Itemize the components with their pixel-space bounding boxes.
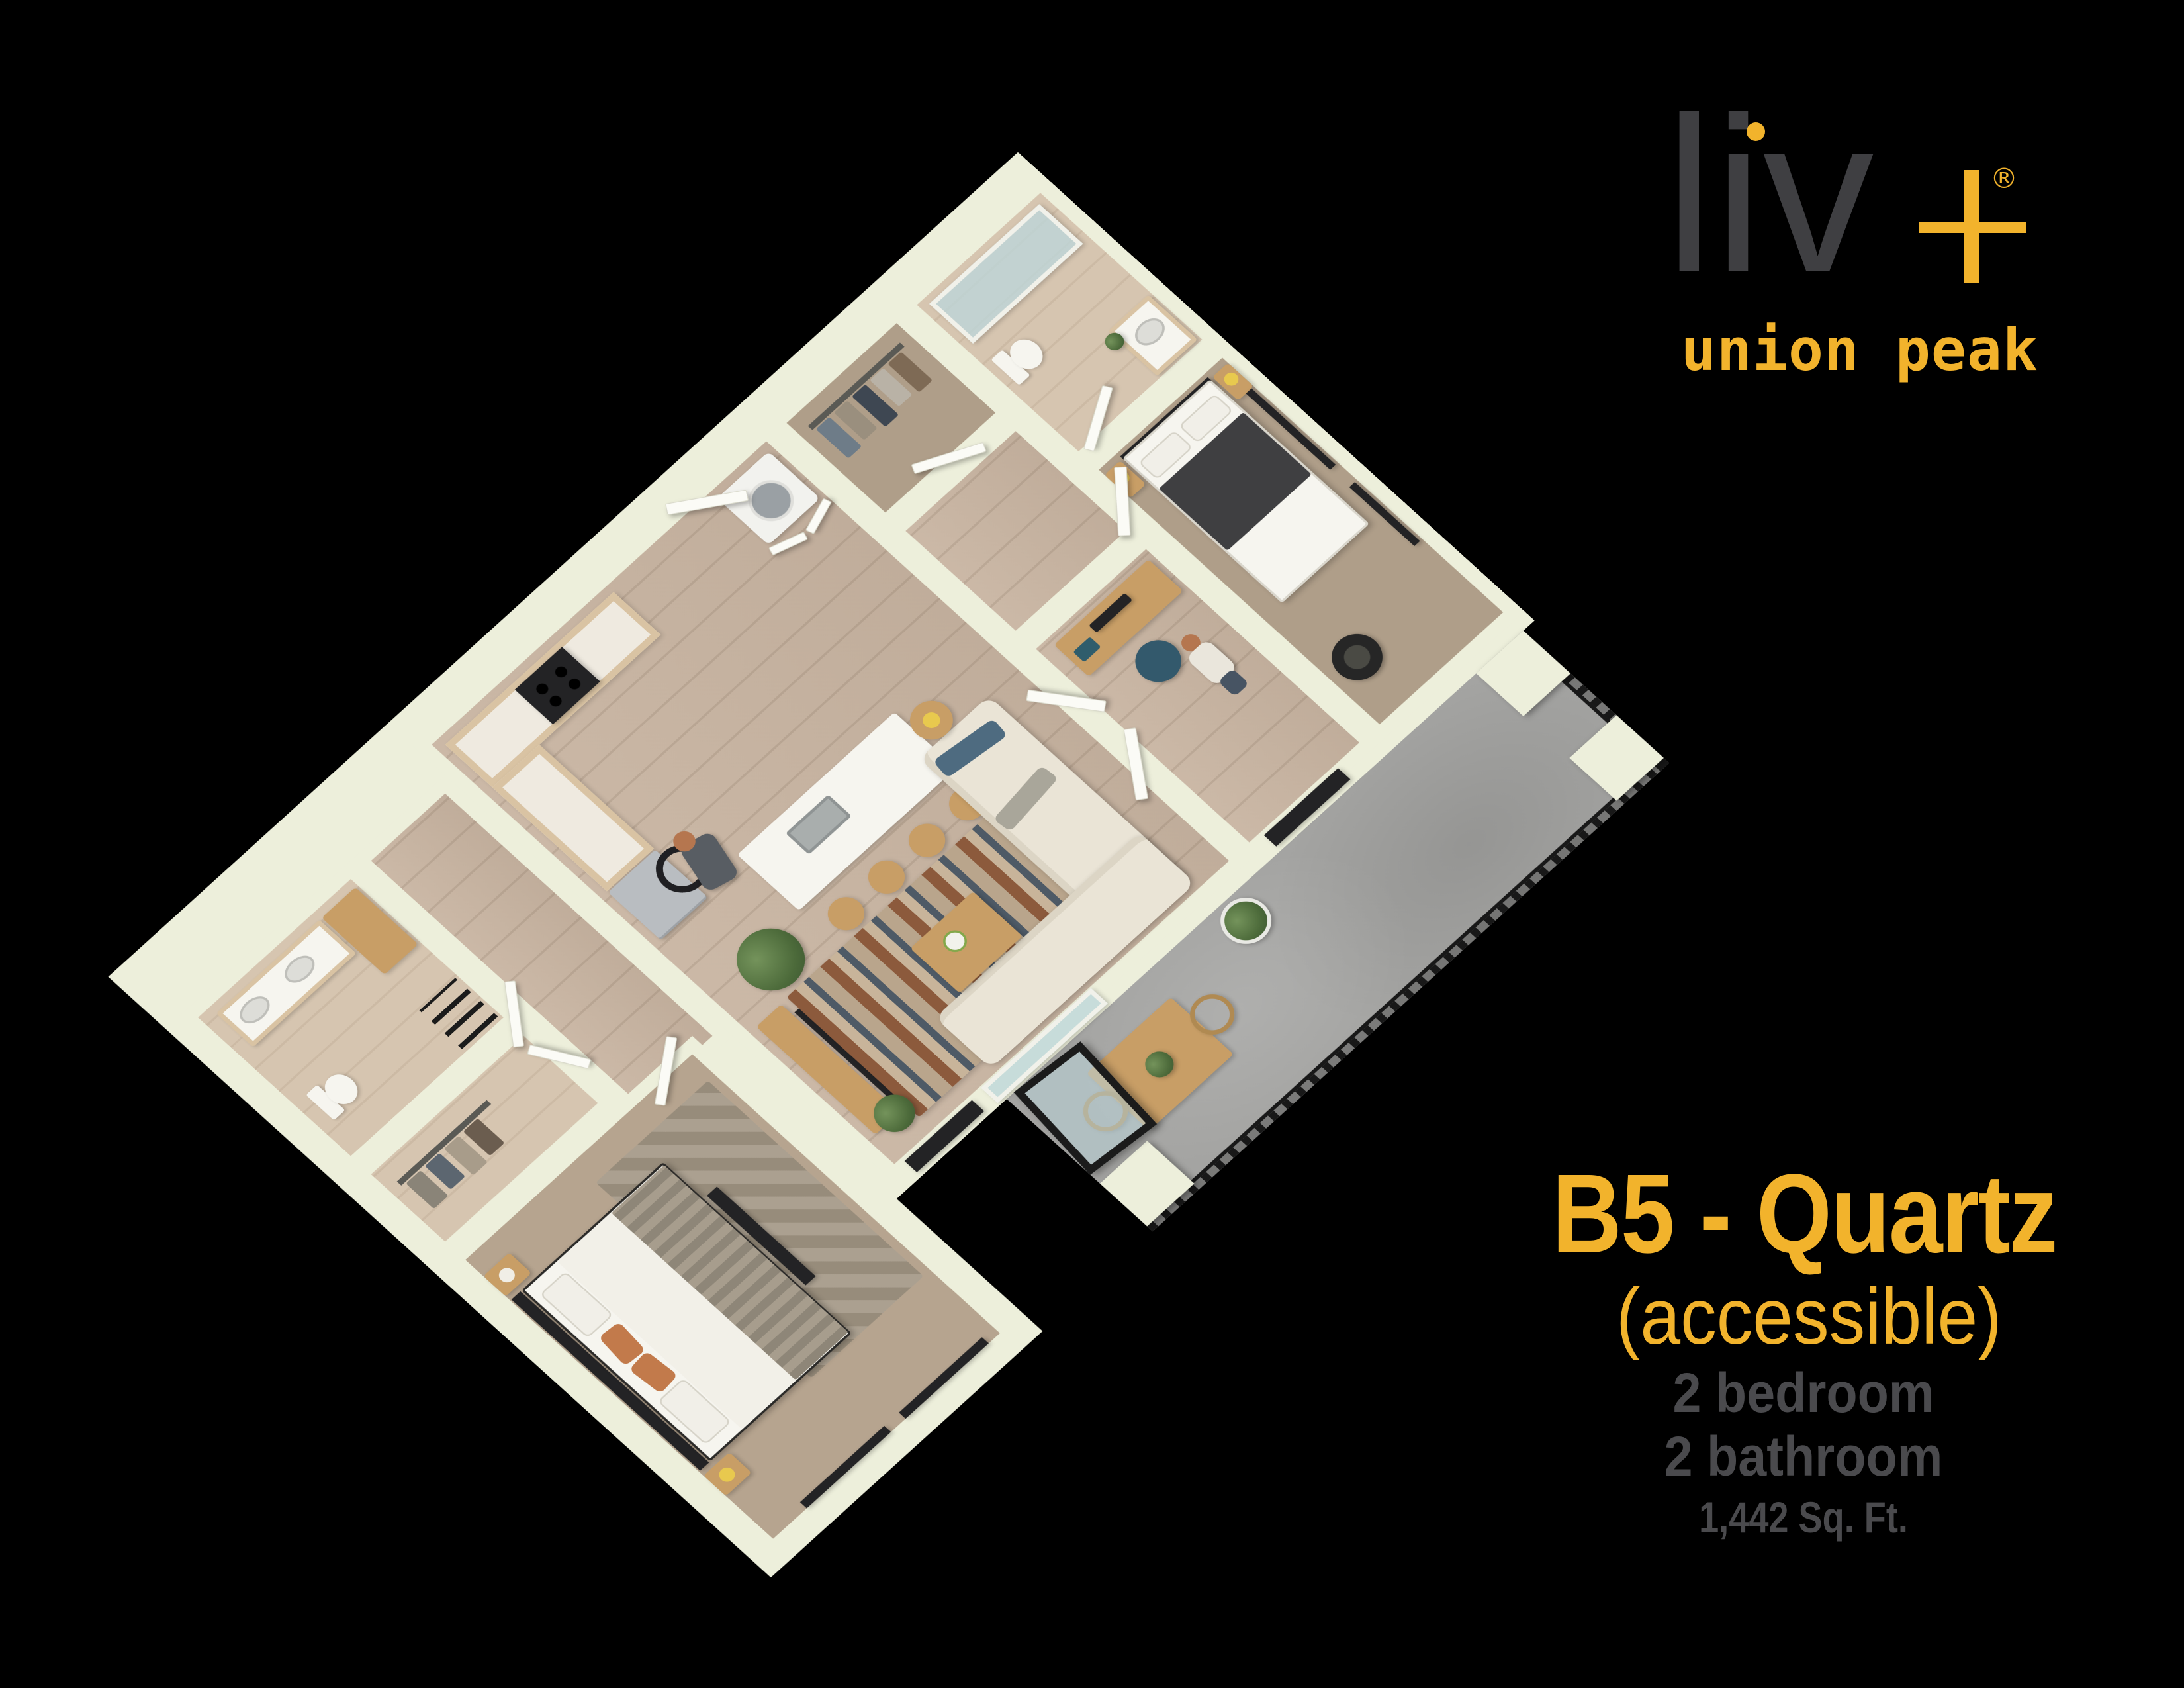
brand-logo: liv ® union peak xyxy=(1664,84,2128,415)
logo-wordmark: liv xyxy=(1664,84,1874,306)
unit-title: B5 - Quartz xyxy=(1552,1149,2057,1279)
floor-plan xyxy=(30,91,1681,1588)
flyer-canvas: { "palette": { "accent": "#F2B32C", "log… xyxy=(0,0,2184,1688)
spec-area: 1,442 Sq. Ft. xyxy=(1649,1492,1958,1542)
logo-i-dot-accent xyxy=(1747,122,1765,141)
logo-subtitle: union peak xyxy=(1681,316,2038,384)
unit-subtitle: (accessible) xyxy=(1616,1271,2002,1362)
plus-icon xyxy=(1919,222,2026,233)
registered-mark: ® xyxy=(1990,162,2018,195)
spec-bedrooms: 2 bedroom xyxy=(1630,1361,1977,1425)
spec-bathrooms: 2 bathroom xyxy=(1630,1425,1977,1489)
floor-plan-scene xyxy=(30,91,1680,1587)
